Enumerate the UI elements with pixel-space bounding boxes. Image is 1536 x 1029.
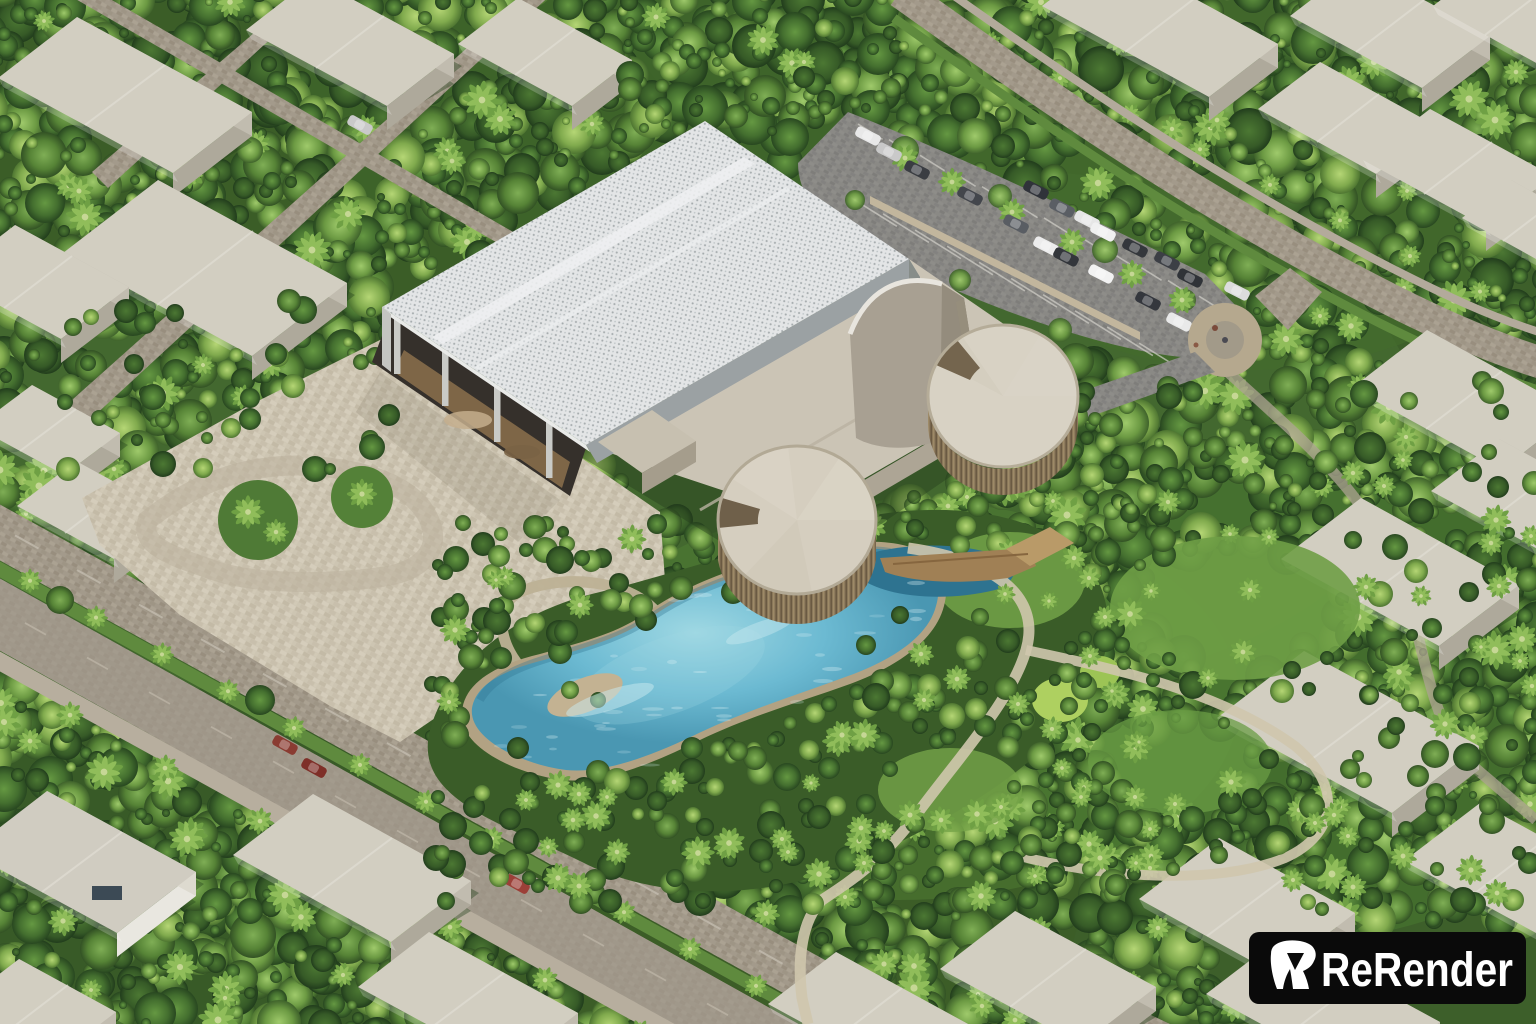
svg-text:ReRender: ReRender xyxy=(1321,944,1513,997)
